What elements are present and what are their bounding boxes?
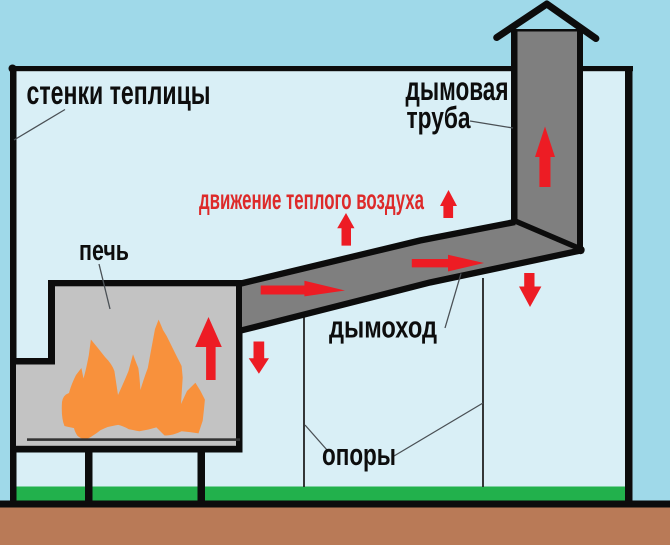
svg-text:дымоход: дымоход <box>329 310 437 345</box>
svg-text:печь: печь <box>79 235 129 267</box>
svg-text:труба: труба <box>407 100 472 135</box>
svg-text:движение теплого воздуха: движение теплого воздуха <box>199 184 424 215</box>
svg-text:опоры: опоры <box>322 437 396 472</box>
svg-text:стенки теплицы: стенки теплицы <box>27 74 211 111</box>
